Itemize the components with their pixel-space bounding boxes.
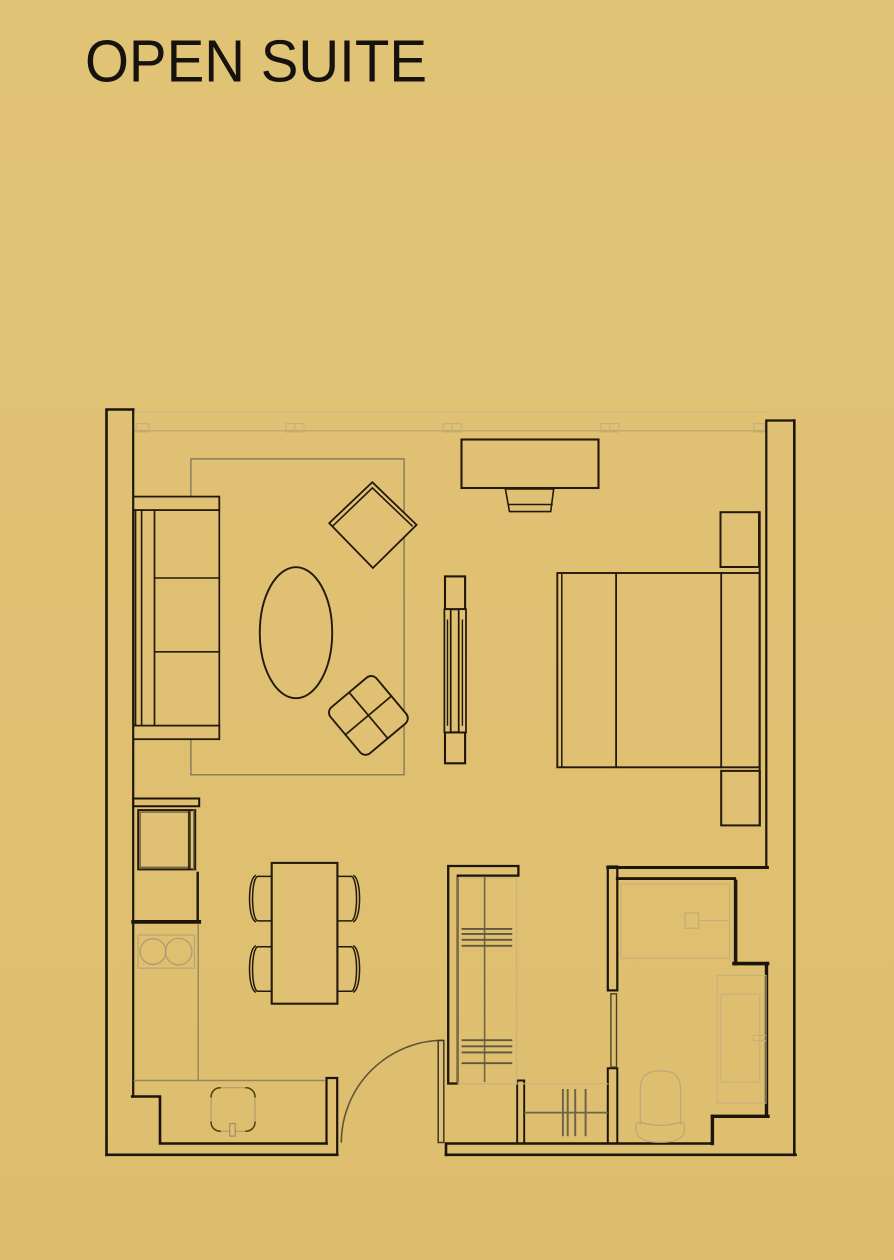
svg-text:OPEN SUITE: OPEN SUITE — [85, 29, 427, 95]
